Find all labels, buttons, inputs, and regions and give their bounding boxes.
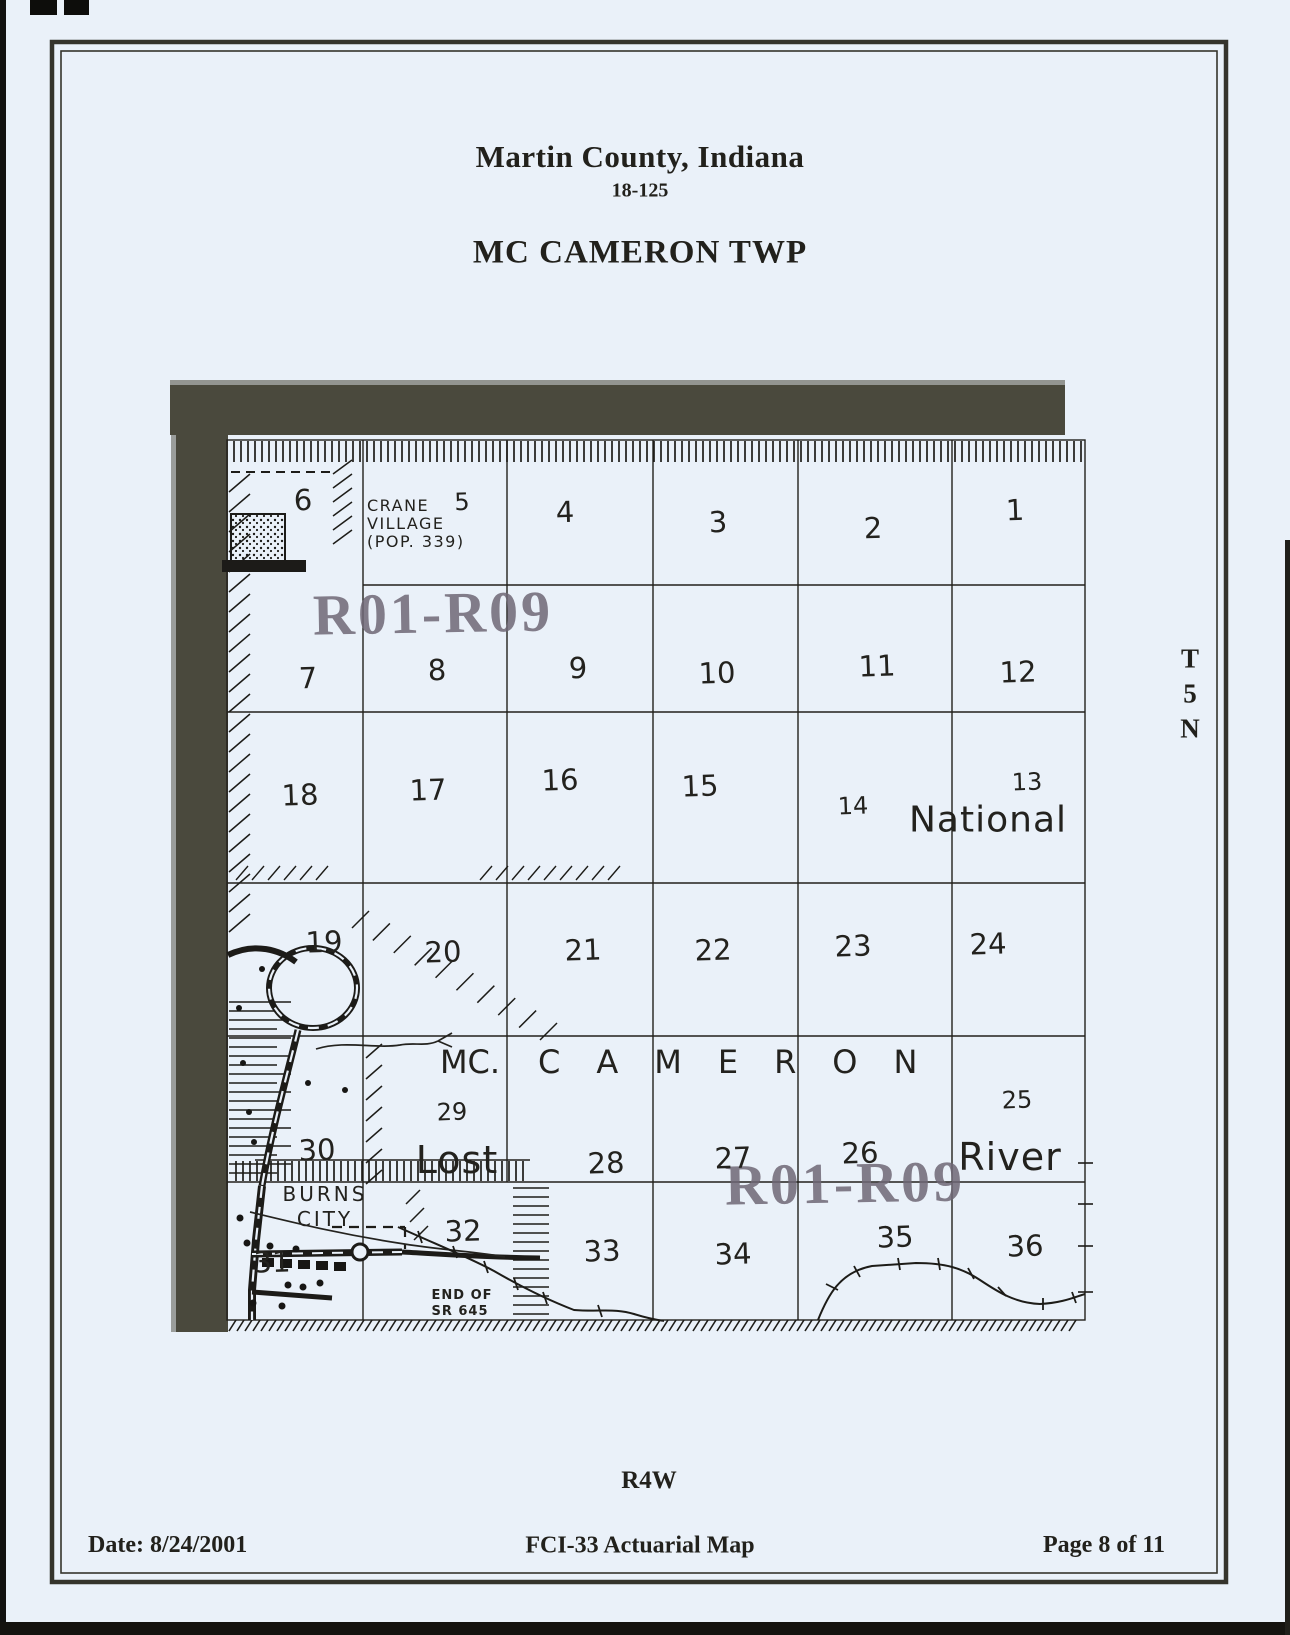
footer-page: Page 8 of 11 bbox=[1043, 1532, 1165, 1559]
county-title: Martin County, Indiana bbox=[476, 139, 805, 175]
section-33-label: 33 bbox=[583, 1233, 621, 1268]
section-12-label: 12 bbox=[999, 654, 1037, 689]
township-row-t: T bbox=[1180, 642, 1200, 677]
section-24-label: 24 bbox=[969, 926, 1007, 961]
end-of-sr645-line2: SR 645 bbox=[431, 1304, 492, 1320]
township-name-mc: MC. bbox=[440, 1043, 500, 1081]
section-26-label: 26 bbox=[841, 1135, 879, 1170]
lost-river-label-east: River bbox=[958, 1135, 1061, 1179]
footer-date: Date: 8/24/2001 bbox=[88, 1532, 247, 1559]
section-18-label: 18 bbox=[281, 777, 319, 812]
top-hatch-comb bbox=[234, 441, 1081, 462]
crane-village-label: CRANE VILLAGE (POP. 339) bbox=[367, 497, 465, 551]
crane-village-block bbox=[222, 472, 336, 572]
burns-city-line1: BURNS bbox=[283, 1182, 368, 1207]
section-13-label: 13 bbox=[1011, 767, 1043, 796]
section6-hatch bbox=[333, 460, 352, 544]
section-7-label: 7 bbox=[298, 661, 318, 696]
crane-village-line2: VILLAGE bbox=[367, 515, 465, 533]
rate-area-stamp-1: R01-R09 bbox=[312, 577, 553, 648]
section-15-label: 15 bbox=[681, 768, 719, 803]
section-10-label: 10 bbox=[698, 655, 736, 690]
bottom-hatch-comb bbox=[229, 1320, 1076, 1331]
range-label: R4W bbox=[621, 1467, 677, 1495]
section-11-label: 11 bbox=[858, 648, 896, 683]
county-code: 18-125 bbox=[612, 180, 669, 203]
section-9-label: 9 bbox=[568, 651, 588, 686]
section-8-label: 8 bbox=[427, 653, 447, 688]
section-31-label: 31 bbox=[253, 1244, 291, 1279]
crane-village-pop: (POP. 339) bbox=[367, 533, 465, 551]
section-2-label: 2 bbox=[863, 511, 883, 546]
crane-village-line1: CRANE bbox=[367, 497, 465, 515]
end-of-sr645-label: END OF SR 645 bbox=[431, 1288, 492, 1320]
section-35-label: 35 bbox=[876, 1219, 914, 1254]
section-23-label: 23 bbox=[834, 928, 872, 963]
burns-city-label: BURNS CITY bbox=[283, 1182, 368, 1232]
scanned-map-page: Martin County, Indiana 18-125 MC CAMERON… bbox=[0, 0, 1290, 1635]
section-22-label: 22 bbox=[694, 932, 732, 967]
section-17-label: 17 bbox=[409, 772, 447, 807]
section-6-label: 6 bbox=[293, 483, 313, 518]
lost-river-label-west: Lost bbox=[416, 1138, 498, 1182]
section-3-label: 3 bbox=[708, 505, 728, 540]
section-28-label: 28 bbox=[587, 1145, 625, 1180]
section-30-label: 30 bbox=[298, 1132, 336, 1167]
township-row-n: N bbox=[1180, 712, 1200, 747]
township-title: MC CAMERON TWP bbox=[473, 235, 807, 272]
section-1-label: 1 bbox=[1005, 493, 1025, 528]
line-hatch bbox=[236, 866, 620, 880]
section-29-label: 29 bbox=[436, 1097, 468, 1126]
section-34-label: 34 bbox=[714, 1236, 752, 1271]
section-16-label: 16 bbox=[541, 762, 579, 797]
end-of-sr645-line1: END OF bbox=[431, 1288, 492, 1304]
section-20-label: 20 bbox=[424, 934, 462, 969]
section-19-label: 19 bbox=[305, 924, 343, 959]
township-name-cameron: CAMERON bbox=[538, 1043, 953, 1081]
footer-title: FCI-33 Actuarial Map bbox=[525, 1533, 754, 1560]
township-row-label: T 5 N bbox=[1180, 642, 1200, 747]
burns-city-line2: CITY bbox=[283, 1207, 368, 1232]
township-row-5: 5 bbox=[1180, 677, 1200, 712]
national-label: National bbox=[909, 800, 1067, 841]
section19-hatch bbox=[352, 911, 557, 1040]
section-27-label: 27 bbox=[714, 1140, 752, 1175]
section-4-label: 4 bbox=[555, 495, 575, 530]
section-21-label: 21 bbox=[564, 932, 602, 967]
section-36-label: 36 bbox=[1006, 1228, 1044, 1263]
section-32-label: 32 bbox=[444, 1213, 482, 1248]
section-25-label: 25 bbox=[1001, 1085, 1033, 1114]
section-14-label: 14 bbox=[837, 791, 869, 820]
